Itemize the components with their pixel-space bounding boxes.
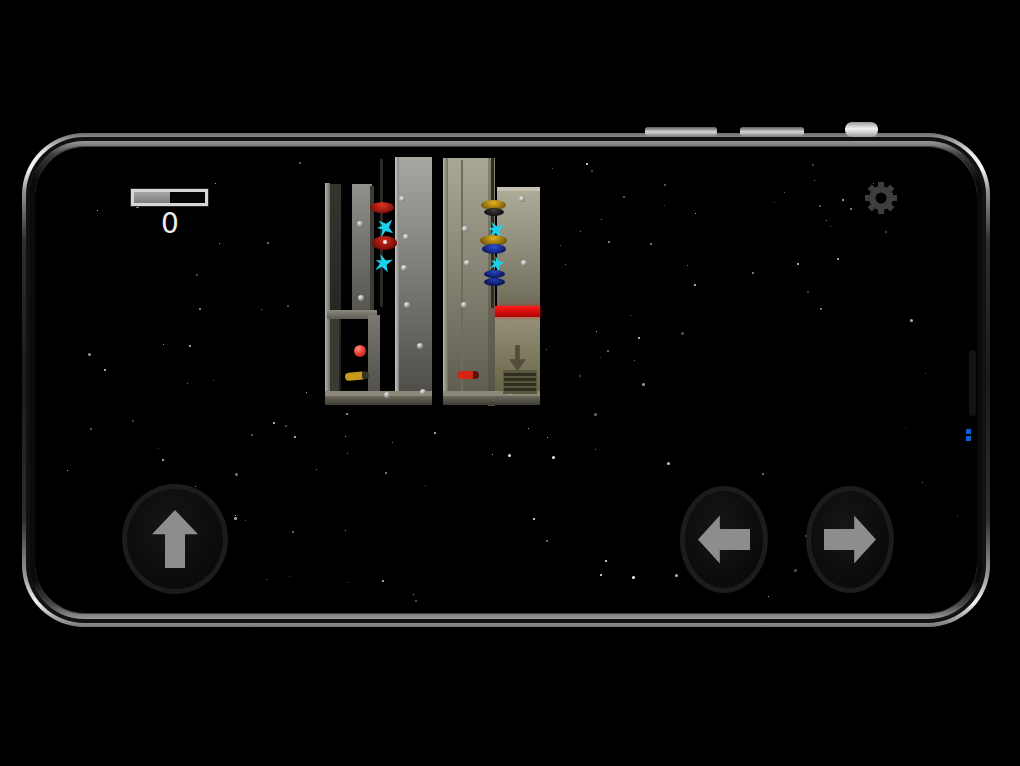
- star: [492, 454, 493, 455]
- star: [632, 576, 635, 579]
- tower-panel: [443, 396, 540, 405]
- star: [675, 574, 678, 577]
- notification-glyph-icon: [966, 429, 971, 434]
- star: [565, 264, 566, 265]
- star: [213, 380, 214, 381]
- star: [266, 579, 267, 580]
- star: [348, 582, 349, 583]
- star: [905, 428, 906, 429]
- star: [922, 482, 923, 483]
- star: [579, 375, 581, 377]
- star: [812, 164, 814, 166]
- rivet: [357, 221, 363, 227]
- tower-panel: [395, 157, 399, 402]
- right-arrow-icon: [824, 514, 876, 566]
- star: [768, 596, 769, 597]
- game-disc: [370, 202, 394, 213]
- rivet: [462, 226, 468, 232]
- tower-panel: [352, 184, 372, 310]
- move-left-button[interactable]: [680, 486, 768, 593]
- star: [784, 192, 785, 193]
- star: [695, 213, 696, 214]
- star: [814, 180, 815, 181]
- star: [104, 369, 106, 371]
- star: [434, 432, 436, 434]
- star: [158, 448, 159, 449]
- rivet: [519, 196, 525, 202]
- vent-grate: [503, 370, 537, 394]
- star: [925, 373, 926, 374]
- antenna-line: [969, 350, 976, 416]
- game-ball: [354, 345, 366, 357]
- screenshot-stage: 0: [0, 0, 1020, 766]
- game-disc: [484, 270, 505, 278]
- star: [132, 420, 134, 422]
- star: [560, 245, 561, 246]
- progress-bar-fill: [134, 192, 170, 203]
- star: [528, 428, 529, 429]
- star: [235, 515, 236, 516]
- star: [667, 462, 670, 465]
- star: [287, 305, 289, 307]
- star: [292, 531, 294, 533]
- star: [596, 331, 597, 332]
- rivet: [404, 302, 410, 308]
- star: [97, 210, 98, 211]
- star: [346, 413, 348, 415]
- energy-spark: [375, 217, 396, 238]
- star: [826, 220, 827, 221]
- star: [752, 272, 754, 274]
- star: [345, 436, 346, 437]
- disc-highlight: [383, 240, 387, 244]
- star: [687, 265, 688, 266]
- star: [830, 226, 831, 227]
- star: [382, 580, 384, 582]
- star: [600, 574, 602, 576]
- star: [600, 357, 601, 358]
- star: [819, 205, 821, 207]
- star: [594, 413, 597, 416]
- star: [762, 473, 764, 475]
- game-disc: [484, 208, 504, 216]
- rivet: [417, 343, 423, 349]
- star: [215, 183, 216, 184]
- star: [850, 208, 852, 210]
- rivet: [399, 196, 405, 202]
- star: [392, 442, 393, 443]
- tower-panel: [497, 187, 540, 191]
- star: [820, 308, 822, 310]
- star: [608, 241, 610, 243]
- star: [910, 319, 913, 322]
- star: [607, 350, 609, 352]
- star: [794, 569, 797, 572]
- star: [285, 425, 287, 427]
- star: [163, 344, 164, 345]
- star: [642, 383, 645, 386]
- star: [413, 594, 414, 595]
- star: [196, 274, 198, 276]
- star: [774, 202, 775, 203]
- tower-panel: [325, 396, 432, 405]
- star: [67, 470, 68, 471]
- star: [235, 473, 238, 476]
- star: [837, 258, 839, 260]
- game-disc: [484, 278, 505, 286]
- star: [638, 337, 640, 339]
- rivet: [521, 260, 527, 266]
- left-arrow-icon: [698, 514, 750, 566]
- star: [533, 518, 535, 520]
- star: [199, 308, 201, 310]
- rivet: [420, 389, 426, 395]
- star: [552, 168, 553, 169]
- star: [546, 349, 547, 350]
- star: [306, 392, 307, 393]
- star: [299, 162, 301, 164]
- game-disc: [372, 236, 397, 250]
- score-label: 0: [120, 209, 220, 239]
- game-pill: [345, 371, 370, 381]
- game-pill: [457, 371, 479, 379]
- star: [347, 453, 348, 454]
- star: [605, 560, 607, 562]
- tower-panel: [330, 319, 339, 391]
- tower-panel: [448, 158, 490, 400]
- star: [681, 332, 684, 335]
- tower-panel: [368, 315, 380, 391]
- star: [552, 456, 555, 459]
- star: [797, 263, 799, 265]
- star: [664, 205, 665, 206]
- star: [189, 345, 191, 347]
- star: [294, 436, 296, 438]
- rivet: [401, 265, 407, 271]
- laser-bar: [495, 306, 540, 317]
- rivet: [464, 260, 470, 266]
- star: [267, 242, 269, 244]
- game-disc: [482, 244, 506, 254]
- star: [842, 199, 844, 201]
- star: [591, 170, 593, 172]
- star: [251, 434, 253, 436]
- star: [289, 576, 290, 577]
- star: [580, 231, 581, 232]
- star: [245, 520, 246, 521]
- star: [885, 231, 887, 233]
- star: [90, 428, 92, 430]
- star: [634, 360, 635, 361]
- star: [316, 469, 317, 470]
- star: [415, 600, 417, 602]
- star: [195, 486, 196, 487]
- star: [630, 315, 631, 316]
- jump-up-button[interactable]: [122, 484, 228, 594]
- settings-gear-icon[interactable]: [862, 179, 900, 217]
- rivet: [358, 295, 364, 301]
- star: [508, 454, 511, 457]
- star: [957, 515, 958, 516]
- volume-button-2: [740, 127, 804, 136]
- star: [623, 196, 625, 198]
- up-arrow-icon: [150, 510, 200, 568]
- star: [261, 309, 262, 310]
- star: [234, 517, 237, 520]
- star: [601, 219, 602, 220]
- star: [162, 459, 164, 461]
- tower-panel: [395, 157, 432, 402]
- star: [219, 243, 220, 244]
- star: [650, 243, 652, 245]
- star: [694, 284, 696, 286]
- star: [345, 530, 346, 531]
- star: [664, 184, 666, 186]
- power-button: [845, 122, 878, 137]
- rivet: [403, 234, 409, 240]
- energy-spark: [373, 253, 393, 273]
- star: [425, 485, 426, 486]
- volume-button-1: [645, 127, 717, 136]
- star: [586, 163, 588, 165]
- rivet: [461, 302, 467, 308]
- star: [595, 449, 596, 450]
- star: [547, 437, 548, 438]
- star: [88, 353, 91, 356]
- move-right-button[interactable]: [806, 486, 894, 593]
- tower-panel: [461, 160, 463, 398]
- notification-glyph-icon: [966, 436, 971, 441]
- star: [187, 383, 188, 384]
- star: [385, 472, 387, 474]
- star: [807, 291, 809, 293]
- rivet: [384, 392, 390, 398]
- progress-bar: [131, 189, 208, 206]
- star: [273, 422, 275, 424]
- game-scene: [0, 0, 1020, 766]
- star: [546, 540, 548, 542]
